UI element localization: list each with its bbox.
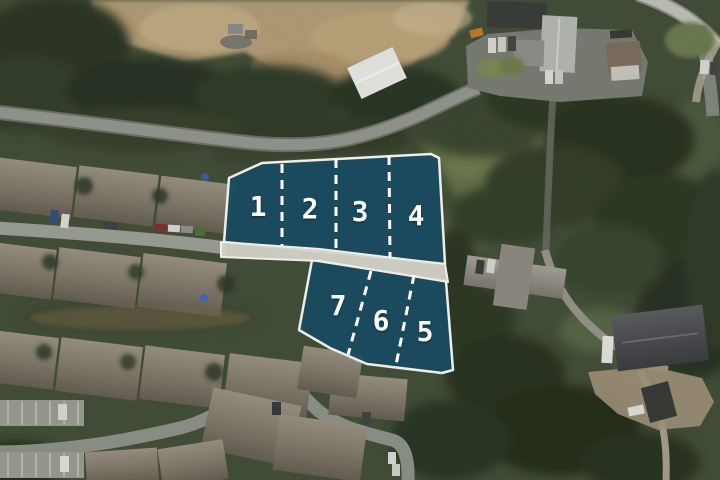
aerial-lot-map: 1 2 3 4 7 6 5: [0, 0, 720, 480]
